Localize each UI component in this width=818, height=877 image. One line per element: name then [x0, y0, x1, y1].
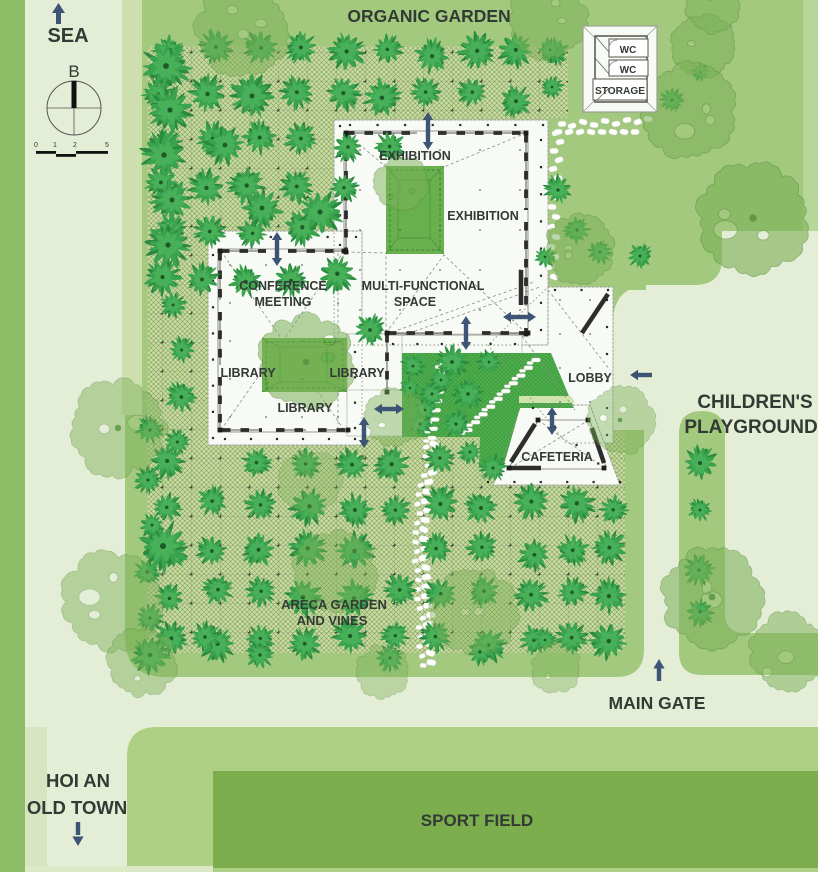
- svg-text:MULTI-FUNCTIONAL: MULTI-FUNCTIONAL: [362, 279, 485, 293]
- svg-text:EXHIBITION: EXHIBITION: [447, 209, 519, 223]
- svg-text:B: B: [68, 62, 79, 81]
- svg-text:SEA: SEA: [47, 25, 88, 47]
- svg-text:LIBRARY: LIBRARY: [277, 401, 333, 415]
- svg-text:0: 0: [34, 142, 38, 149]
- svg-text:MAIN GATE: MAIN GATE: [609, 693, 706, 713]
- svg-text:5: 5: [105, 142, 109, 149]
- svg-text:STORAGE: STORAGE: [595, 86, 645, 97]
- svg-text:LOBBY: LOBBY: [568, 371, 612, 385]
- svg-text:WC: WC: [620, 65, 637, 76]
- svg-text:HOI AN: HOI AN: [46, 770, 110, 791]
- svg-text:EXHIBITION: EXHIBITION: [379, 149, 451, 163]
- svg-text:ARECA GARDEN: ARECA GARDEN: [281, 597, 387, 612]
- svg-text:LIBRARY: LIBRARY: [220, 366, 276, 380]
- svg-text:WC: WC: [620, 45, 637, 56]
- svg-text:1: 1: [53, 142, 57, 149]
- svg-text:LIBRARY: LIBRARY: [329, 366, 385, 380]
- svg-text:CAFETERIA: CAFETERIA: [521, 450, 593, 464]
- svg-text:CONFERENCE: CONFERENCE: [239, 279, 327, 293]
- svg-text:OLD TOWN: OLD TOWN: [27, 797, 127, 818]
- svg-text:PLAYGROUND: PLAYGROUND: [684, 417, 817, 438]
- svg-text:CHILDREN'S: CHILDREN'S: [697, 392, 812, 413]
- svg-text:SPACE: SPACE: [394, 295, 436, 309]
- svg-text:2: 2: [73, 142, 77, 149]
- svg-text:MEETING: MEETING: [255, 295, 312, 309]
- svg-text:SPORT FIELD: SPORT FIELD: [421, 811, 533, 830]
- svg-text:AND VINES: AND VINES: [297, 613, 368, 628]
- svg-text:ORGANIC GARDEN: ORGANIC GARDEN: [347, 6, 510, 26]
